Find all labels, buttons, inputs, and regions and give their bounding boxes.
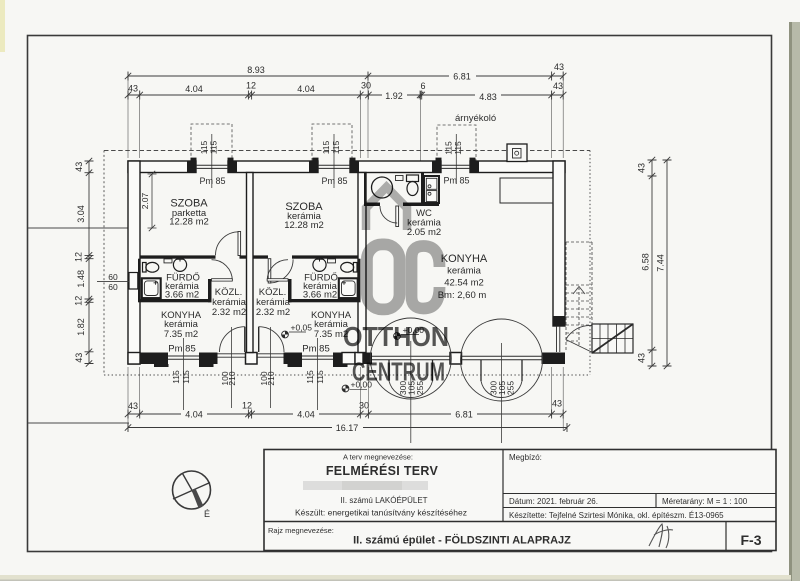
svg-text:43: 43 — [128, 84, 138, 94]
svg-text:115: 115 — [209, 140, 219, 154]
svg-text:12: 12 — [242, 401, 252, 411]
svg-text:8.93: 8.93 — [247, 65, 265, 75]
svg-text:+0,05: +0,05 — [291, 323, 313, 333]
svg-text:kerámia: kerámia — [447, 266, 482, 277]
svg-text:Pm 85: Pm 85 — [302, 344, 329, 355]
svg-text:255: 255 — [506, 381, 516, 395]
svg-text:43: 43 — [553, 81, 563, 91]
svg-text:II. számú LAKÓÉPÜLET: II. számú LAKÓÉPÜLET — [340, 496, 427, 505]
svg-text:Pm 85: Pm 85 — [200, 176, 226, 186]
svg-text:3.04: 3.04 — [76, 205, 86, 223]
svg-text:12: 12 — [74, 296, 84, 306]
svg-text:7.35 m2: 7.35 m2 — [164, 329, 198, 340]
svg-text:60: 60 — [108, 272, 118, 282]
svg-text:115: 115 — [321, 140, 331, 154]
svg-text:KONYHA: KONYHA — [441, 253, 488, 265]
svg-text:OTTHON: OTTHON — [343, 321, 449, 352]
svg-text:Pm 85: Pm 85 — [322, 176, 348, 186]
svg-text:Pm 85: Pm 85 — [168, 344, 195, 355]
svg-text:Méretarány: M = 1 : 100: Méretarány: M = 1 : 100 — [662, 497, 748, 506]
svg-text:12: 12 — [74, 252, 84, 262]
svg-text:30: 30 — [361, 81, 371, 91]
svg-text:A terv megnevezése:: A terv megnevezése: — [343, 453, 413, 462]
svg-text:II. számú épület - FÖLDSZINTI: II. számú épület - FÖLDSZINTI ALAPRAJZ — [353, 534, 571, 547]
svg-text:Pm 85: Pm 85 — [444, 176, 470, 186]
svg-text:30: 30 — [359, 401, 369, 411]
svg-text:2.32 m2: 2.32 m2 — [256, 307, 290, 318]
svg-text:43: 43 — [637, 353, 647, 363]
svg-text:Megbízó:: Megbízó: — [509, 453, 542, 462]
svg-text:115: 115 — [305, 370, 315, 384]
svg-text:6.81: 6.81 — [455, 410, 473, 420]
svg-text:1.92: 1.92 — [385, 91, 403, 101]
svg-text:Készült: energetikai tanúsítvá: Készült: energetikai tanúsítvány készíté… — [295, 508, 467, 518]
svg-text:6: 6 — [420, 81, 425, 91]
svg-text:3.66 m2: 3.66 m2 — [303, 290, 337, 301]
svg-text:115: 115 — [181, 370, 191, 384]
svg-text:115: 115 — [444, 141, 454, 155]
svg-text:CENTRUM: CENTRUM — [352, 357, 445, 387]
svg-text:4.04: 4.04 — [185, 410, 203, 420]
svg-text:210: 210 — [266, 371, 276, 385]
svg-text:43: 43 — [74, 353, 84, 363]
svg-text:7.44: 7.44 — [656, 254, 666, 272]
svg-text:Dátum: 2021. február 26.: Dátum: 2021. február 26. — [509, 497, 598, 506]
svg-text:4.04: 4.04 — [297, 410, 315, 420]
svg-text:Készítette: Tejfelné Szirtesi: Készítette: Tejfelné Szirtesi Mónika, ok… — [509, 511, 724, 520]
svg-text:115: 115 — [315, 370, 325, 384]
svg-text:43: 43 — [74, 162, 84, 172]
svg-text:É: É — [204, 509, 210, 519]
svg-text:2.32 m2: 2.32 m2 — [212, 307, 246, 318]
svg-text:4.04: 4.04 — [185, 84, 203, 94]
svg-text:115: 115 — [453, 141, 463, 155]
svg-text:3.66 m2: 3.66 m2 — [165, 290, 199, 301]
svg-text:F-3: F-3 — [741, 532, 762, 548]
svg-text:FELMÉRÉSI TERV: FELMÉRÉSI TERV — [326, 463, 439, 478]
svg-text:12.28 m2: 12.28 m2 — [284, 220, 324, 231]
svg-text:60: 60 — [108, 282, 118, 292]
svg-text:6.58: 6.58 — [641, 253, 651, 271]
svg-text:Rajz megnevezése:: Rajz megnevezése: — [268, 526, 334, 535]
svg-text:árnyékoló: árnyékoló — [455, 113, 496, 124]
svg-text:4.83: 4.83 — [479, 92, 497, 102]
svg-text:43: 43 — [554, 62, 564, 72]
svg-text:2.07: 2.07 — [140, 192, 150, 209]
svg-text:12.28 m2: 12.28 m2 — [169, 217, 209, 228]
svg-text:1.48: 1.48 — [76, 270, 86, 288]
svg-text:12: 12 — [246, 81, 256, 91]
svg-text:4.04: 4.04 — [297, 84, 315, 94]
svg-text:42.54 m2: 42.54 m2 — [444, 278, 484, 289]
svg-text:115: 115 — [331, 140, 341, 154]
svg-text:115: 115 — [199, 140, 209, 154]
svg-text:2.05 m2: 2.05 m2 — [407, 227, 441, 238]
svg-text:115: 115 — [171, 370, 181, 384]
svg-text:43: 43 — [552, 399, 562, 409]
svg-text:1.82: 1.82 — [76, 318, 86, 336]
svg-text:43: 43 — [637, 163, 647, 173]
svg-text:43: 43 — [128, 401, 138, 411]
svg-text:6.81: 6.81 — [453, 72, 471, 82]
svg-text:16.17: 16.17 — [336, 423, 359, 433]
svg-text:210: 210 — [227, 371, 237, 385]
